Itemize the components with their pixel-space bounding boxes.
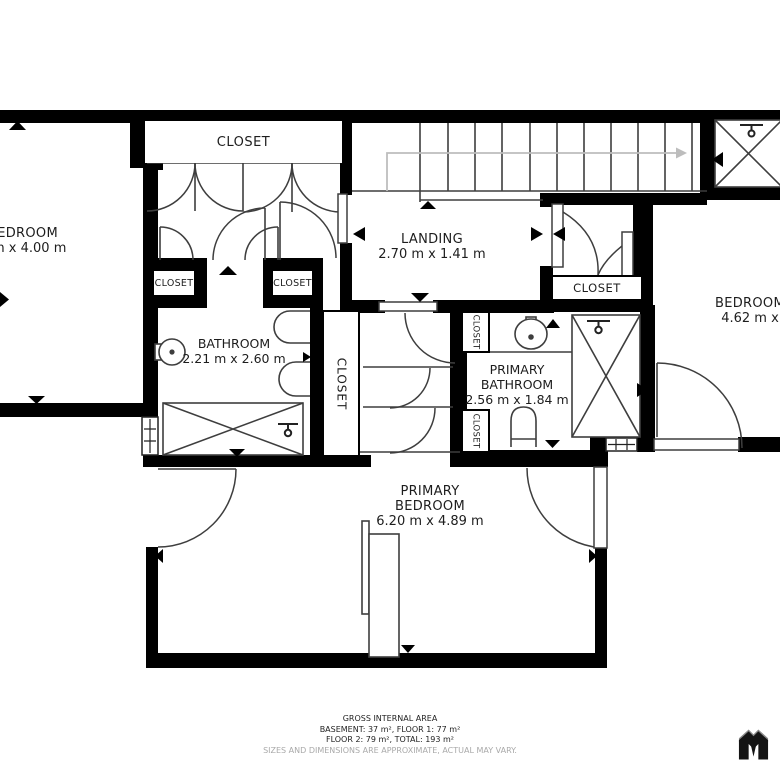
footer-area-summary: GROSS INTERNAL AREA BASEMENT: 37 m², FLO… xyxy=(263,714,517,756)
room-dims: 7 m x 4.00 m xyxy=(0,241,66,256)
room-name: BEDROOM xyxy=(0,226,66,241)
room-name-line2: BATHROOM xyxy=(465,377,568,392)
disclaimer: SIZES AND DIMENSIONS ARE APPROXIMATE, AC… xyxy=(263,746,517,757)
floor-plan: CLOSET CLOSET CLOSET CLOSET CLOSET CLOSE… xyxy=(0,0,780,780)
shower-top-right xyxy=(715,120,780,187)
area-line-1: BASEMENT: 37 m², FLOOR 1: 77 m² xyxy=(263,725,517,736)
room-label-bathroom: BATHROOM 2.21 m x 2.60 m xyxy=(182,336,285,366)
room-label: CLOSET xyxy=(471,315,481,350)
room-name: BEDROOM xyxy=(715,296,780,311)
room-name-line1: PRIMARY xyxy=(465,362,568,377)
closet-hall-right: CLOSET xyxy=(271,269,314,297)
room-label: CLOSET xyxy=(334,357,348,410)
room-name: BATHROOM xyxy=(182,336,285,351)
wardrobe-furniture xyxy=(362,521,399,657)
toilet-icon xyxy=(155,339,185,365)
room-label: CLOSET xyxy=(573,281,621,295)
closet-primary-bath-top: CLOSET xyxy=(461,311,490,353)
room-dims: 2.70 m x 1.41 m xyxy=(378,247,485,262)
room-label-primary-bedroom: PRIMARY BEDROOM 6.20 m x 4.89 m xyxy=(376,484,483,529)
closet-column: CLOSET xyxy=(322,310,360,457)
room-label: CLOSET xyxy=(155,278,194,289)
closet-hall-left: CLOSET xyxy=(152,269,196,297)
staircase xyxy=(352,123,707,202)
room-name-line1: PRIMARY xyxy=(376,484,483,499)
gross-internal-area-title: GROSS INTERNAL AREA xyxy=(263,714,517,725)
matterport-logo-icon xyxy=(737,727,770,763)
window-right-bedroom xyxy=(606,438,637,451)
area-line-2: FLOOR 2: 79 m², TOTAL: 193 m² xyxy=(263,735,517,746)
room-label-bedroom-right: BEDROOM 4.62 m x xyxy=(715,296,780,326)
sink-icon xyxy=(515,317,547,349)
closet-under-stairs: CLOSET xyxy=(551,275,643,301)
floor-plan-drawing xyxy=(0,0,780,780)
toilet-primary-icon xyxy=(511,407,536,447)
room-label: CLOSET xyxy=(217,135,271,150)
stair-walkline xyxy=(387,148,687,192)
shower-bathroom xyxy=(163,403,303,455)
room-name: LANDING xyxy=(378,232,485,247)
room-label: CLOSET xyxy=(273,278,312,289)
shower-primary-bathroom xyxy=(572,315,640,437)
room-dims: 2.56 m x 1.84 m xyxy=(465,392,568,407)
room-name-line2: BEDROOM xyxy=(376,499,483,514)
closet-top-room: CLOSET xyxy=(145,121,342,163)
room-dims: 6.20 m x 4.89 m xyxy=(376,514,483,529)
room-label-bedroom-left: BEDROOM 7 m x 4.00 m xyxy=(0,226,66,256)
room-label: CLOSET xyxy=(471,414,481,449)
room-dims: 4.62 m x xyxy=(715,311,780,326)
window-left xyxy=(142,417,158,455)
room-label-primary-bathroom: PRIMARY BATHROOM 2.56 m x 1.84 m xyxy=(465,362,568,407)
room-label-landing: LANDING 2.70 m x 1.41 m xyxy=(378,232,485,262)
room-dims: 2.21 m x 2.60 m xyxy=(182,351,285,366)
closet-primary-bath-bottom: CLOSET xyxy=(461,409,490,453)
